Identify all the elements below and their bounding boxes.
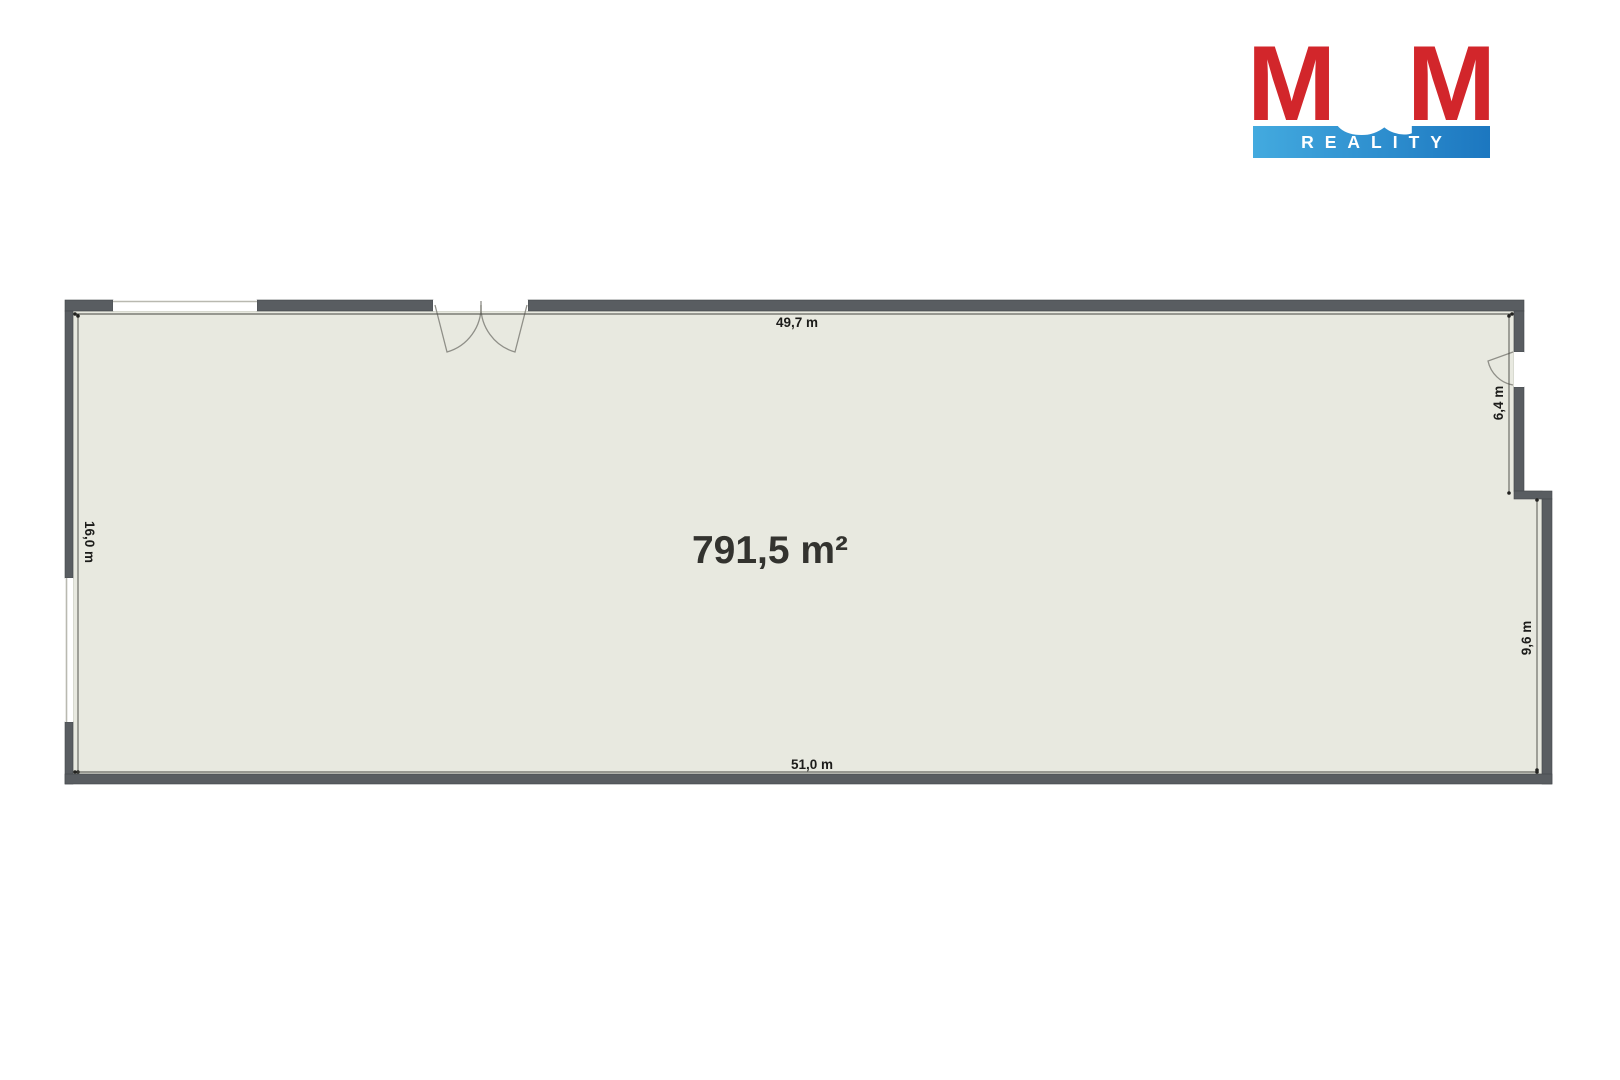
dim-dot [1535,498,1539,502]
wall-top-left [65,300,113,311]
dim-dot [1507,491,1511,495]
dim-dot [73,312,77,316]
wall-right-lower [1542,499,1552,784]
logo-letter-m-right: M [1407,30,1496,137]
wall-step [1514,491,1552,499]
wall-right-upper-b [1514,387,1524,491]
area-label: 791,5 m² [692,529,848,572]
dim-dot [1535,768,1539,772]
floorplan-drawing: 49,7 m 51,0 m 16,0 m 6,4 m 9,6 m 791,5 m… [0,0,1620,1080]
logo-letter-m-left: M [1247,30,1336,137]
dim-label-bottom: 51,0 m [791,757,833,772]
wall-left-upper [65,311,73,578]
mm-reality-logo: M M & REALITY [1253,45,1490,158]
wall-top-mid [257,300,433,311]
dim-dot [1510,312,1514,316]
wall-bottom [65,774,1552,784]
dim-label-right-upper: 6,4 m [1491,386,1506,421]
door-opening-right [1514,352,1524,387]
dim-dot [73,770,77,774]
dim-label-right-lower: 9,6 m [1519,621,1534,656]
logo-mm-letters: M M & [1253,45,1490,126]
dim-dot [1507,314,1511,318]
wall-right-upper-a [1514,311,1524,352]
dim-label-top: 49,7 m [776,315,818,330]
logo-ampersand: & [1327,31,1415,153]
dim-label-left: 16,0 m [82,521,97,563]
floorplan-page: 49,7 m 51,0 m 16,0 m 6,4 m 9,6 m 791,5 m… [0,0,1620,1080]
dim-dot [76,314,80,318]
wall-top-right [528,300,1524,311]
